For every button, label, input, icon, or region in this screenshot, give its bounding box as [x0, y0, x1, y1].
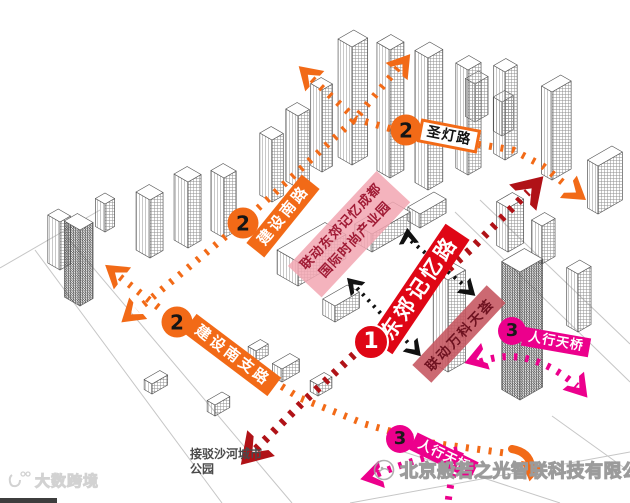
watermark-brand-text: 大数跨境	[35, 470, 99, 491]
watermark-company: 北京般若之光智联科技有限公司	[372, 457, 630, 483]
route2-badge-shengdeng: 2	[391, 115, 422, 146]
bottom-edge-bar	[0, 498, 57, 503]
route2-badge-jianshe-south: 2	[228, 208, 259, 239]
brand-logo-icon	[6, 469, 32, 491]
route3-badge-bottom: 3	[386, 425, 414, 453]
watermark-company-text: 北京般若之光智联科技有限公司	[400, 457, 630, 483]
planning-diagram: 联动东郊记忆成都 国际时尚产业园 联动万科天荟 建设南路 2 圣灯路 2 建设南…	[0, 0, 630, 503]
route3-badge-right: 3	[498, 317, 526, 345]
note-shahe-park: 接驳沙河城市公园	[190, 447, 270, 477]
watermark-brand: 大数跨境	[6, 469, 99, 491]
route2-badge-jianshe-south-branch: 2	[162, 307, 193, 338]
company-logo-icon	[372, 458, 396, 482]
route1-badge: 1	[353, 324, 389, 360]
